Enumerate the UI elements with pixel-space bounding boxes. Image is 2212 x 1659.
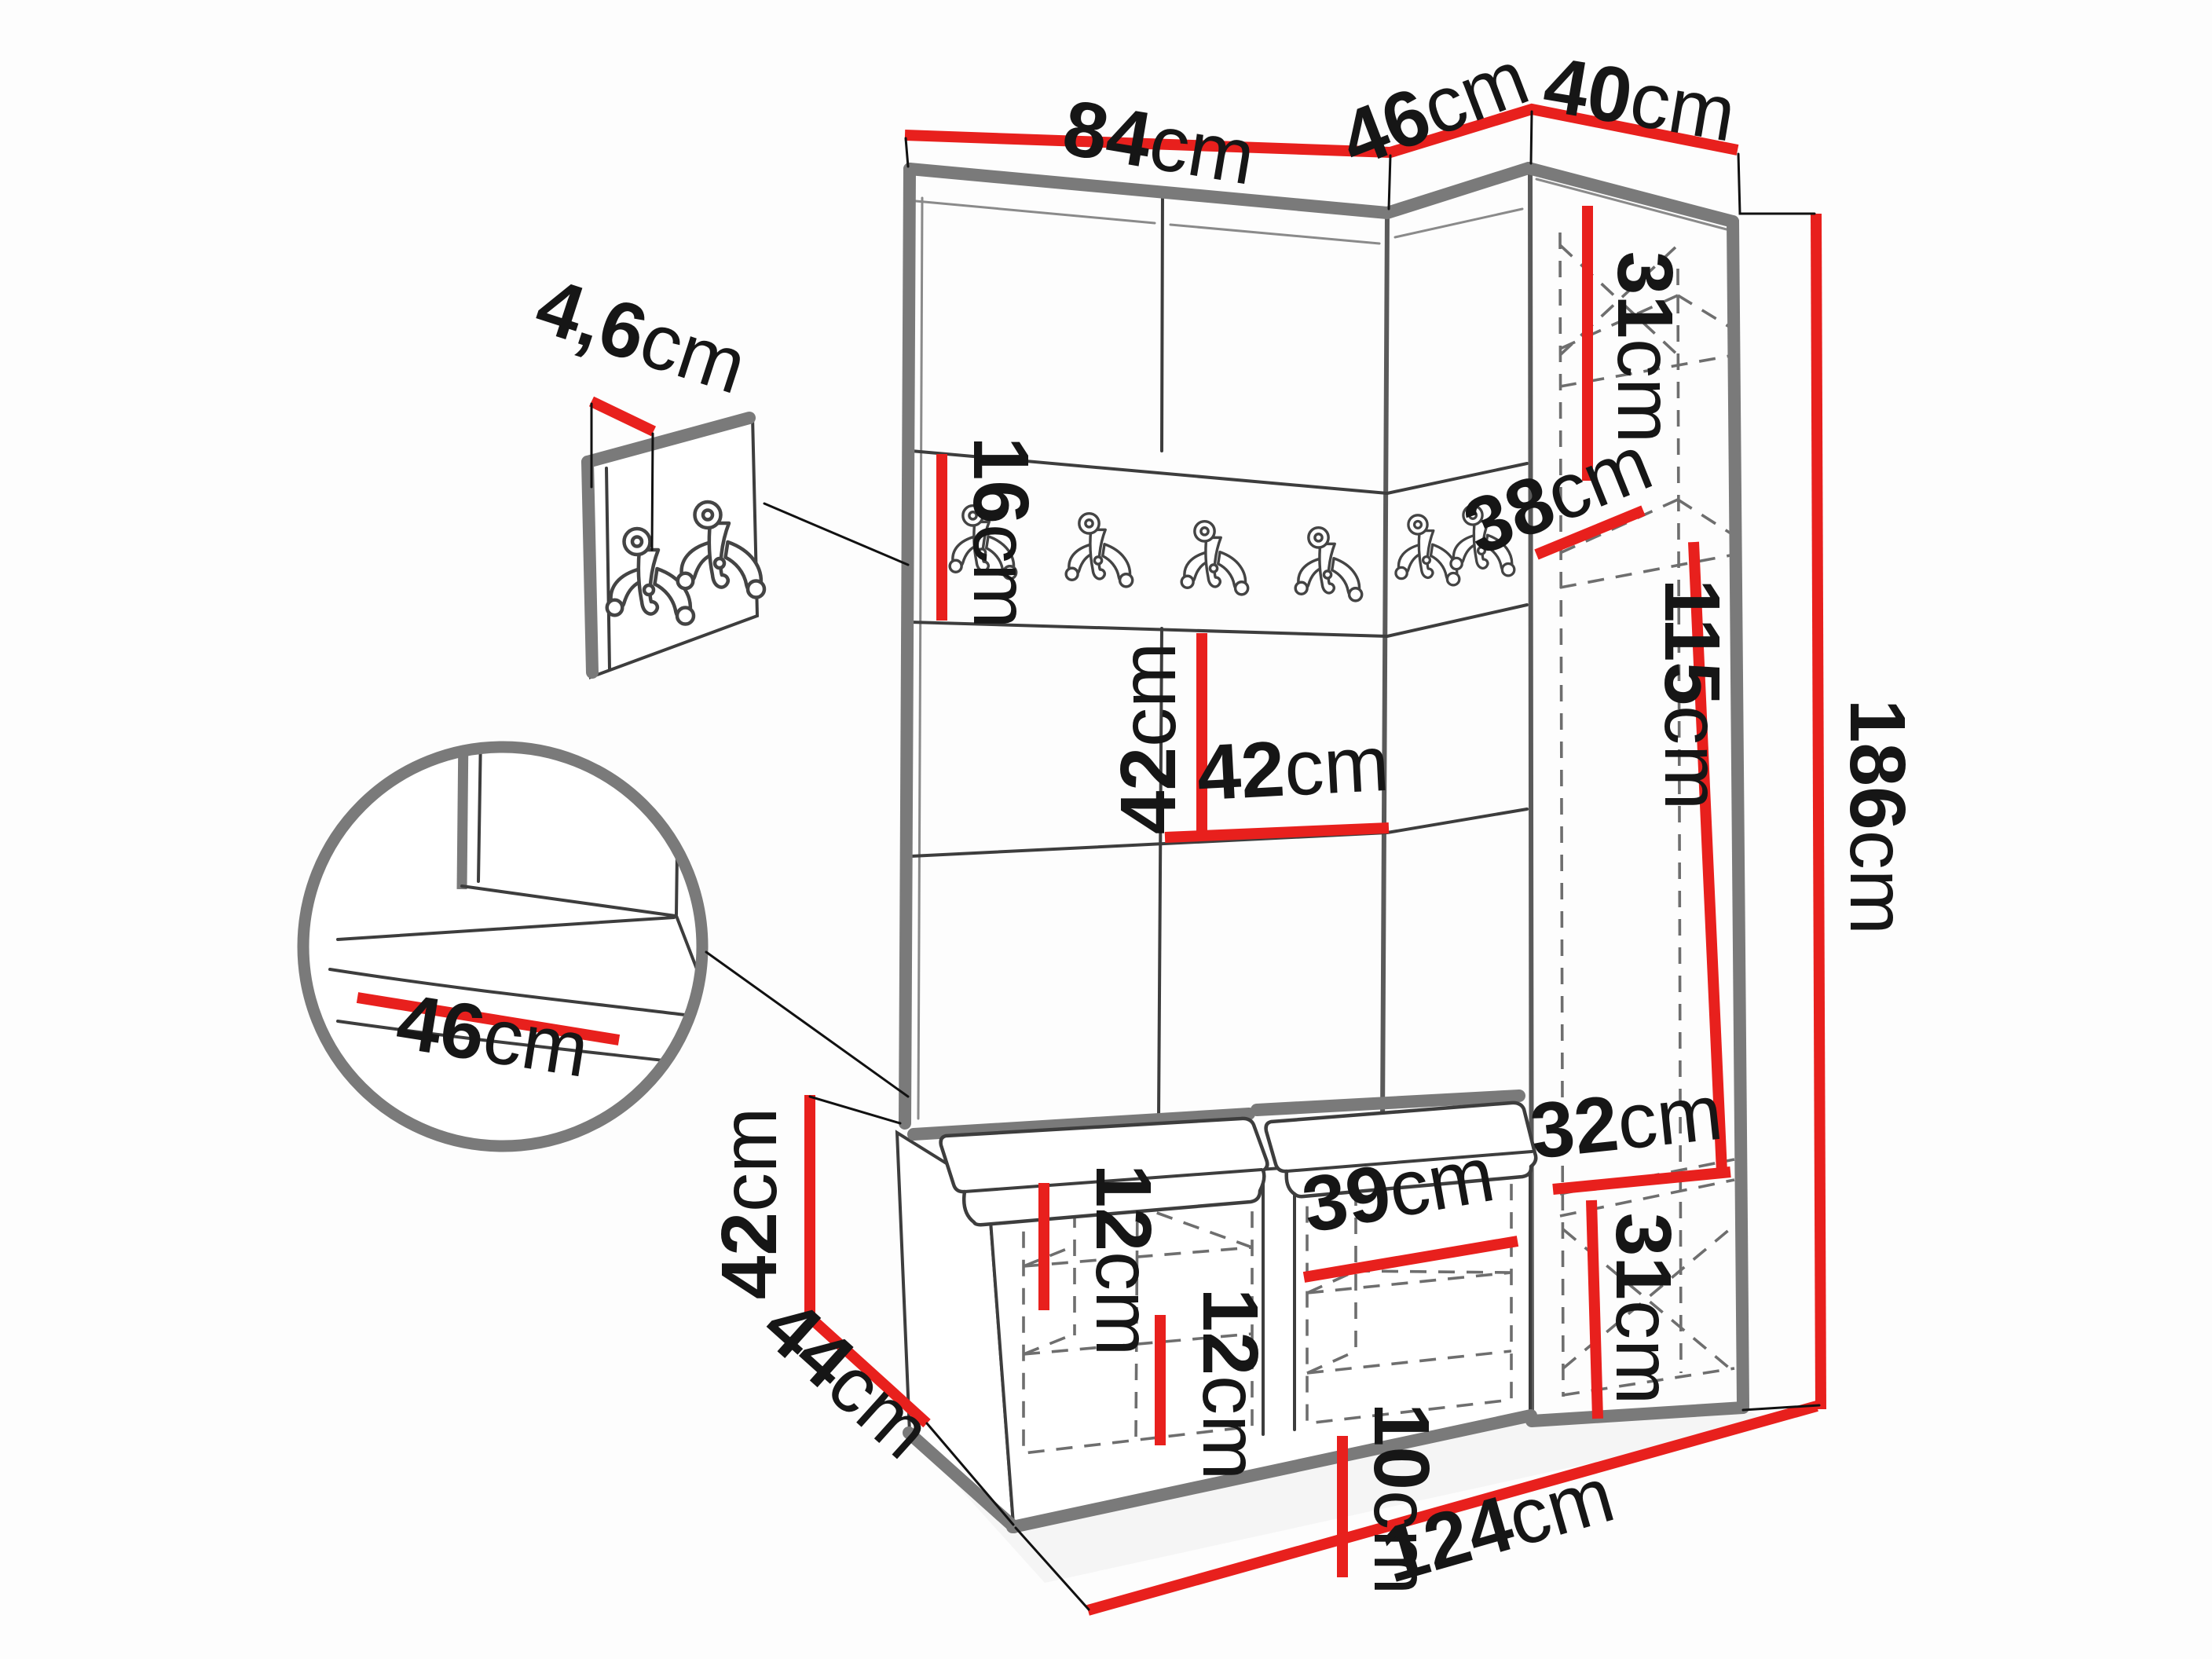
dim-label-wardrobe-top-shelf-height: 31cm [1601, 251, 1689, 444]
furniture-dimension-diagram: 84cm 46cm 40cm 31cm 38cm 115cm 186cm 4,6… [0, 0, 2212, 1659]
wardrobe-right-edge [1733, 222, 1743, 1405]
diagram-canvas: 84cm 46cm 40cm 31cm 38cm 115cm 186cm 4,6… [0, 0, 2212, 1659]
double-hook-icon [1066, 514, 1133, 587]
wardrobe-top-edge [1529, 168, 1733, 222]
double-hook-icon [1295, 528, 1362, 601]
detail-panel-left-edge [588, 462, 592, 672]
double-hook-icon [1181, 522, 1248, 595]
dim-label-panel-width: 42cm [1195, 720, 1391, 818]
panel-seam [1162, 189, 1163, 451]
dim-label-panel-thickness: 4,6cm [526, 261, 757, 411]
dim-label-top-corner-width: 46cm [1329, 33, 1540, 184]
dim-label-top-wardrobe-width: 40cm [1538, 40, 1742, 159]
wardrobe-31b-dimension-line [1591, 1200, 1598, 1419]
wall-left-edge [905, 169, 910, 1123]
panel-detail-callout [584, 416, 908, 677]
detail-pointer-line [764, 504, 908, 565]
bench-corner-callout [303, 731, 908, 1146]
dim-label-total-height: 186cm [1833, 699, 1921, 935]
dim-label-wardrobe-bottom-shelf-depth: 32cm [1526, 1068, 1727, 1176]
dim-label-bench-height: 42cm [705, 1108, 793, 1300]
dim-label-wardrobe-bottom-height: 31cm [1599, 1213, 1687, 1405]
callout-pointer-line [706, 952, 908, 1097]
dim-label-bench-left-shelf-gap: 12cm [1079, 1164, 1167, 1357]
dim-label-panel-height: 42cm [1104, 643, 1192, 835]
dim-label-hook-rail-height: 16cm [957, 437, 1045, 629]
double-hook-icon [1396, 515, 1459, 585]
panel-thickness-dimension-line [591, 401, 654, 431]
wall-corner-seam [1382, 214, 1387, 1125]
panel-wall [905, 168, 1529, 1125]
dim-label-bench-mid-shelf-gap: 12cm [1186, 1288, 1274, 1481]
dim-label-wardrobe-hanging-height: 115cm [1648, 579, 1736, 811]
total-height-dimension-line [1816, 214, 1821, 1409]
